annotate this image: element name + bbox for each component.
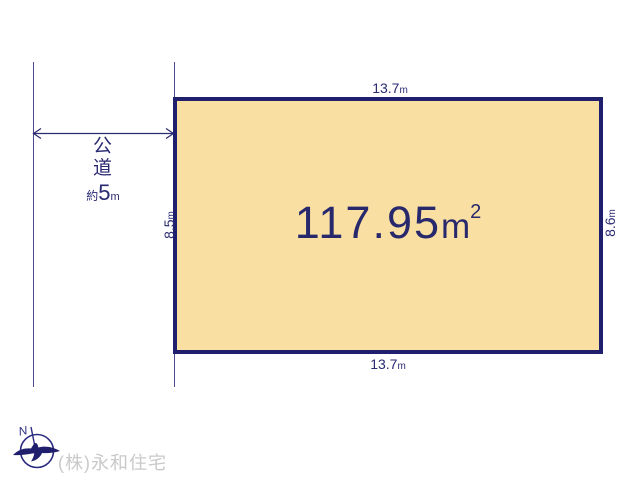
- dimension-left-unit: m: [166, 211, 177, 219]
- dimension-left-value: 8.5: [161, 219, 177, 238]
- road-width-label: 約5m: [63, 180, 143, 206]
- dimension-bottom: 13.7m: [358, 356, 418, 374]
- land-parcel: 117.95m2: [173, 97, 603, 354]
- dimension-right-value: 8.6: [602, 217, 618, 236]
- parcel-area-unit: m: [441, 207, 470, 246]
- road-width-value: 5: [98, 180, 110, 205]
- parcel-area-label: 117.95m2: [295, 197, 482, 249]
- parcel-area-unit-sup: 2: [470, 201, 481, 223]
- road-label-char: 道: [83, 158, 123, 180]
- road-left-extension-line: [33, 62, 34, 387]
- company-name: (株)永和住宅: [58, 449, 167, 475]
- road-label-char: 公: [83, 136, 123, 158]
- dimension-left: 8.5m: [161, 195, 177, 255]
- dimension-bottom-unit: m: [397, 361, 405, 372]
- dimension-top-unit: m: [399, 85, 407, 96]
- parcel-area-value: 117.95: [295, 197, 441, 248]
- dimension-bottom-value: 13.7: [370, 356, 397, 372]
- compass-north-letter: N: [17, 423, 29, 439]
- land-plot-diagram: 公 道 約5m 117.95m2 13.7m 13.7m 8.5m 8.6m N…: [0, 0, 640, 480]
- dimension-top: 13.7m: [360, 80, 420, 98]
- dimension-right: 8.6m: [602, 193, 618, 253]
- north-compass-icon: N: [11, 421, 63, 473]
- road-width-unit: m: [111, 191, 120, 203]
- road-label: 公 道: [83, 136, 123, 180]
- dimension-right-unit: m: [607, 209, 618, 217]
- road-width-prefix: 約: [86, 189, 98, 203]
- dimension-top-value: 13.7: [372, 80, 399, 96]
